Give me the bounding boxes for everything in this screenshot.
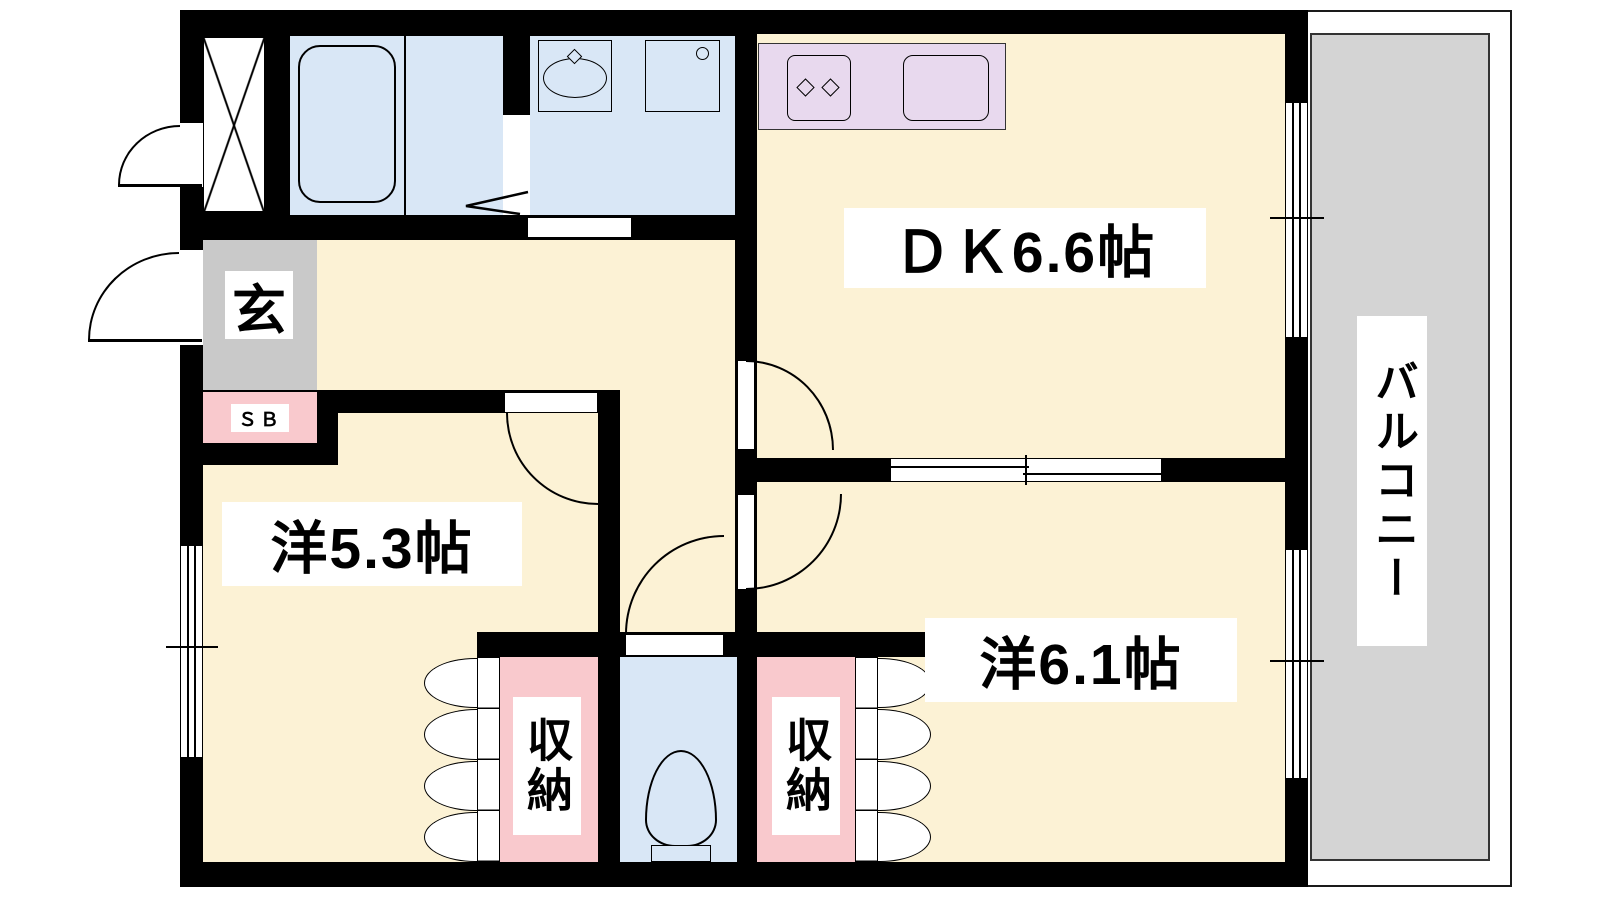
entrance-label: 玄 [225,271,293,339]
hall-floor [317,240,735,390]
room-label-w53: 洋5.3帖 [222,502,522,586]
utility-door-leaf [118,184,202,187]
bathroom-divider [404,36,406,215]
window-dk-balcony [1285,102,1308,338]
window-tick [166,646,218,648]
closet-left-bifold-panels [477,657,500,862]
balcony-label: バルコニー [1357,316,1427,646]
shoe-box-label: ＳＢ [231,404,289,432]
entrance-door-arc [88,252,179,340]
partition-dk-w61 [890,458,1162,482]
pipe-space [203,37,265,212]
window-tick [1270,217,1324,219]
sliding-door-track [632,226,733,228]
toilet-base [651,845,711,862]
bathtub [298,45,396,203]
room-label-w61: 洋6.1帖 [925,618,1237,702]
floor-plan: 収納 収納 [0,0,1600,900]
kitchen-sink [903,55,989,121]
window-w61-balcony [1285,549,1308,779]
utility-door-gap [180,123,203,187]
window-w53 [180,545,203,758]
washbasin-bowl [543,58,607,98]
toilet-door-leaf [625,634,724,656]
closet-right-label: 収納 [772,697,840,835]
entrance-door-leaf [88,339,202,342]
closet-right-bifold-panels [855,657,878,862]
closet-left-label: 収納 [513,697,581,835]
room-label-dk: ＤＫ6.6帖 [844,208,1206,288]
washer-drain-icon [696,47,709,60]
door-w53-leaf [504,392,598,413]
window-tick [1270,660,1324,662]
washroom-sliding-door [527,217,632,238]
entrance-door-gap [180,250,203,345]
utility-door-arc [118,125,180,185]
folding-door-arrow-icon [458,186,534,220]
